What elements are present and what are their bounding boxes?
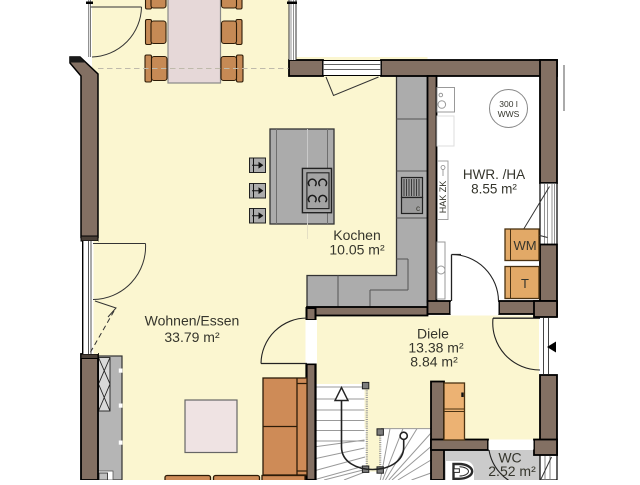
- svg-text:c: c: [416, 204, 420, 213]
- svg-text:WM: WM: [513, 238, 536, 253]
- svg-text:Wohnen/Essen: Wohnen/Essen: [145, 313, 240, 329]
- svg-text:T: T: [521, 276, 529, 291]
- svg-text:HAK ZK: HAK ZK: [438, 181, 448, 214]
- svg-text:2.52 m²: 2.52 m²: [488, 463, 536, 479]
- svg-text:WWS: WWS: [498, 109, 520, 119]
- svg-text:10.05 m²: 10.05 m²: [329, 242, 385, 258]
- svg-text:8.84 m²: 8.84 m²: [410, 354, 458, 370]
- svg-text:HWR. /HA: HWR. /HA: [463, 167, 525, 182]
- svg-text:8.55 m²: 8.55 m²: [471, 182, 517, 197]
- svg-text:33.79 m²: 33.79 m²: [164, 329, 220, 345]
- svg-text:300 l: 300 l: [499, 99, 518, 109]
